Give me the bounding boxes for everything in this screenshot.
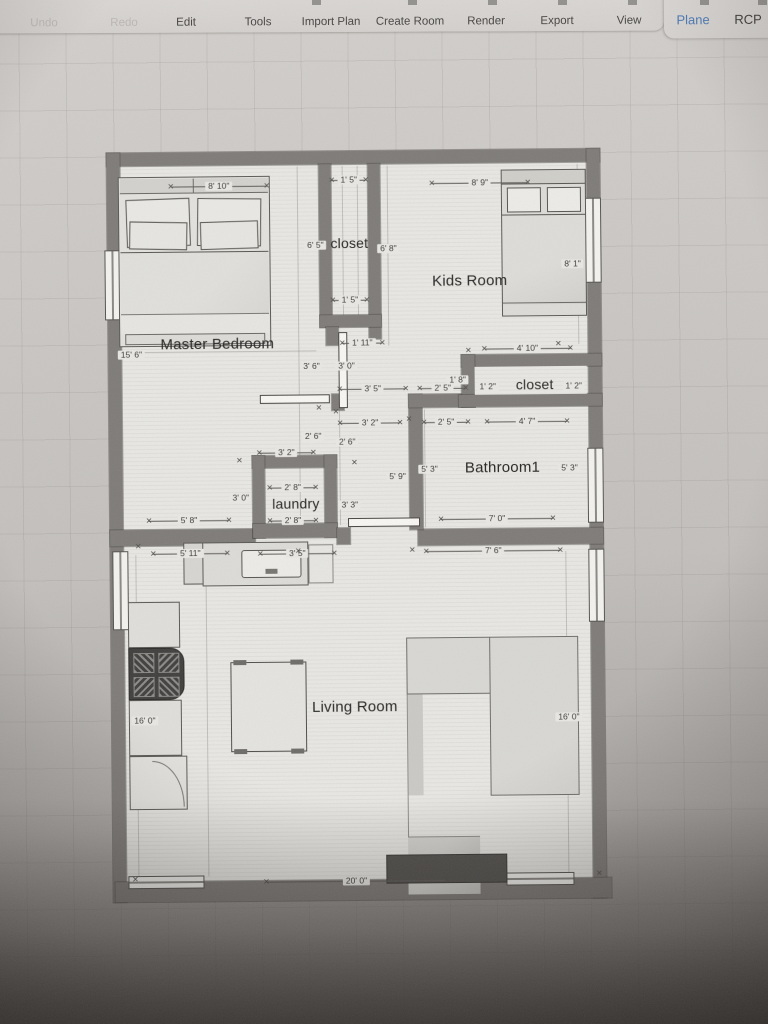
dimension-label: ✕✕2' 8" [281, 483, 304, 493]
room-label-laundry: laundry [272, 495, 319, 511]
dimension-tick-icon: ✕ [409, 546, 416, 554]
dimension-tick-icon: ✕ [333, 408, 340, 416]
dimension-tick-icon: ✕ [438, 515, 445, 523]
dimension-tick-icon: ✕ [421, 418, 428, 426]
dimension-label: ✕✕5' 11" [177, 549, 204, 559]
dimension-label: ✕✕2' 5" [435, 417, 458, 427]
toolbar-item-undo[interactable]: Undo [30, 17, 58, 29]
dimension-tick-icon: ✕ [263, 878, 270, 886]
dimension-label: 3' 0" [335, 361, 358, 371]
dimension-label: ✕✕5' 8" [178, 516, 201, 526]
cropped-toolbar-icon [700, 0, 709, 5]
dimension-label: ✕✕8' 10" [205, 181, 232, 191]
dimension-label: ✕✕2' 8" [282, 516, 305, 526]
dimension-label: 1' 2" [476, 382, 499, 392]
room-label-kids-room: Kids Room [432, 272, 507, 290]
cropped-toolbar-icon [558, 0, 567, 5]
dimension-label: 15' 6" [118, 350, 145, 360]
cropped-toolbar-icon [758, 0, 767, 5]
dimension-label: ✕✕20' 0" [343, 876, 370, 886]
room-label-closet: closet [516, 376, 554, 392]
dimension-tick-icon: ✕ [263, 182, 270, 190]
dimension-label: 3' 0" [230, 493, 253, 503]
dimension-tick-icon: ✕ [339, 339, 346, 347]
dimension-label: 5' 3" [558, 463, 581, 473]
dimension-tick-icon: ✕ [336, 385, 343, 393]
dimension-label: ✕✕1' 11" [349, 338, 376, 348]
toolbar-item-edit[interactable]: Edit [176, 17, 196, 29]
toolbar-item-redo[interactable]: Redo [110, 17, 138, 29]
dimension-label: 6' 8" [377, 244, 400, 254]
dimension-tick-icon: ✕ [146, 517, 153, 525]
dimension-tick-icon: ✕ [465, 347, 472, 355]
dimension-label: ✕✕7' 6" [482, 546, 505, 556]
dimension-tick-icon: ✕ [331, 549, 338, 557]
dimension-label: ✕✕3' 5" [361, 384, 384, 394]
dimension-label: ✕✕7' 0" [486, 514, 509, 524]
dimension-label: 3' 3" [339, 500, 362, 510]
dimension-tick-icon: ✕ [316, 404, 323, 412]
cropped-toolbar-icon [408, 0, 417, 5]
dimension-tick-icon: ✕ [351, 459, 358, 467]
plan-annotations: ✕✕8' 10"✕✕1' 5"✕✕8' 9"6' 5"6' 8"8' 1"✕✕1… [0, 0, 768, 1024]
cropped-toolbar-icon [312, 0, 321, 5]
toolbar-item-export[interactable]: Export [540, 15, 573, 27]
dimension-label: 1' 2" [562, 381, 585, 391]
dimension-tick-icon: ✕ [236, 457, 243, 465]
dimension-tick-icon: ✕ [596, 870, 603, 878]
dimension-label: ✕✕3' 2" [275, 448, 298, 458]
view-mode-plane[interactable]: Plane [676, 12, 709, 27]
dimension-label: 2' 6" [302, 432, 325, 442]
dimension-tick-icon: ✕ [337, 419, 344, 427]
dimension-tick-icon: ✕ [524, 178, 531, 186]
toolbar-item-tools[interactable]: Tools [245, 16, 272, 28]
dimension-tick-icon: ✕ [402, 384, 409, 392]
dimension-label: ✕✕8' 9" [468, 178, 491, 188]
dimension-label: ✕✕4' 10" [514, 344, 541, 354]
screen-photo: ✕✕8' 10"✕✕1' 5"✕✕8' 9"6' 5"6' 8"8' 1"✕✕1… [0, 0, 768, 1024]
dimension-label: 5' 9" [386, 472, 409, 482]
dimension-label: 16' 0" [131, 716, 158, 726]
dimension-label: ✕✕3' 2" [359, 418, 382, 428]
dimension-tick-icon: ✕ [416, 384, 423, 392]
dimension-tick-icon: ✕ [226, 516, 233, 524]
dimension-tick-icon: ✕ [564, 417, 571, 425]
dimension-tick-icon: ✕ [557, 546, 564, 554]
dimension-tick-icon: ✕ [397, 419, 404, 427]
toolbar-item-render[interactable]: Render [467, 15, 505, 27]
dimension-tick-icon: ✕ [363, 296, 370, 304]
floor-plan[interactable]: ✕✕8' 10"✕✕1' 5"✕✕8' 9"6' 5"6' 8"8' 1"✕✕1… [0, 0, 768, 1024]
dimension-tick-icon: ✕ [406, 415, 413, 423]
dimension-label: 3' 6" [300, 362, 323, 372]
dimension-tick-icon: ✕ [135, 543, 142, 551]
toolbar-item-create-room[interactable]: Create Room [376, 15, 444, 27]
dimension-tick-icon: ✕ [266, 484, 273, 492]
dimension-tick-icon: ✕ [329, 296, 336, 304]
toolbar-items: UndoRedoEditToolsImport PlanCreate RoomR… [0, 0, 664, 33]
dimension-tick-icon: ✕ [428, 179, 435, 187]
room-label-master-bedroom: Master Bedroom [160, 335, 274, 353]
dimension-tick-icon: ✕ [167, 183, 174, 191]
dimension-tick-icon: ✕ [257, 550, 264, 558]
dimension-label: 8' 1" [561, 259, 584, 269]
dimension-label: 2' 6" [336, 437, 359, 447]
dimension-label: ✕✕2' 5" [431, 383, 454, 393]
view-mode-panel: PlaneRCP [664, 0, 768, 38]
toolbar-item-view[interactable]: View [617, 15, 642, 27]
dimension-label: ✕✕1' 5" [339, 295, 362, 305]
dimension-tick-icon: ✕ [550, 514, 557, 522]
main-toolbar: UndoRedoEditToolsImport PlanCreate RoomR… [0, 0, 664, 33]
dimension-label: 5' 3" [418, 465, 441, 475]
dimension-tick-icon: ✕ [312, 483, 319, 491]
room-label-bathroom1: Bathroom1 [465, 459, 540, 477]
dimension-tick-icon: ✕ [481, 345, 488, 353]
dimension-tick-icon: ✕ [484, 418, 491, 426]
dimension-tick-icon: ✕ [462, 384, 469, 392]
dimension-label: 6' 5" [304, 241, 327, 251]
dimension-tick-icon: ✕ [567, 344, 574, 352]
dimension-label: ✕✕1' 5" [337, 175, 360, 185]
view-mode-rcp[interactable]: RCP [734, 12, 762, 27]
room-label-living-room: Living Room [312, 698, 398, 716]
dimension-tick-icon: ✕ [224, 549, 231, 557]
dimension-tick-icon: ✕ [362, 176, 369, 184]
room-label-closet: closet [330, 235, 368, 251]
dimension-tick-icon: ✕ [423, 547, 430, 555]
dimension-label: 16' 0" [555, 712, 582, 722]
toolbar-item-import-plan[interactable]: Import Plan [302, 16, 361, 28]
cropped-toolbar-icon [628, 0, 637, 5]
dimension-tick-icon: ✕ [465, 418, 472, 426]
dimension-tick-icon: ✕ [443, 876, 450, 884]
dimension-label: ✕✕4' 7" [516, 417, 539, 427]
dimension-tick-icon: ✕ [132, 876, 139, 884]
dimension-tick-icon: ✕ [313, 516, 320, 524]
dimension-tick-icon: ✕ [295, 548, 302, 556]
dimension-tick-icon: ✕ [379, 339, 386, 347]
dimension-label: 1' 8" [446, 375, 469, 385]
cropped-toolbar-icon [488, 0, 497, 5]
dimension-tick-icon: ✕ [310, 448, 317, 456]
dimension-tick-icon: ✕ [328, 176, 335, 184]
dimension-tick-icon: ✕ [555, 340, 562, 348]
dimension-tick-icon: ✕ [150, 550, 157, 558]
dimension-tick-icon: ✕ [256, 449, 263, 457]
dimension-tick-icon: ✕ [267, 517, 274, 525]
